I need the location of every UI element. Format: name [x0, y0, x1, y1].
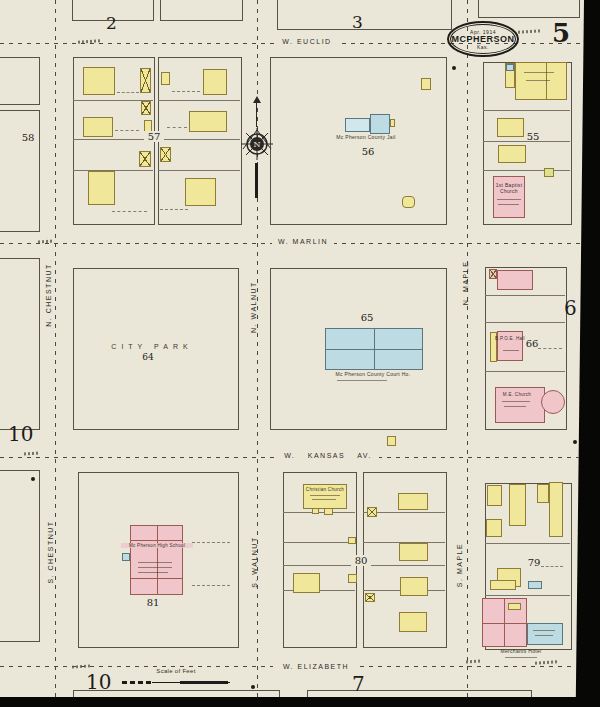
outbuilding — [489, 269, 497, 279]
adjacent-sheet-number-10-left: 10 — [8, 422, 33, 446]
illegible-caption — [337, 380, 387, 381]
partial-block-outline — [160, 0, 243, 21]
warehouse-stone-section — [506, 64, 514, 71]
illegible-caption — [505, 657, 537, 658]
lot-line — [363, 565, 445, 566]
block-number-64: 64 — [138, 352, 158, 362]
barn — [537, 484, 549, 503]
adjacent-sheet-number-3: 3 — [352, 12, 363, 32]
building-high-school — [130, 525, 183, 595]
court-house-interior-line — [374, 329, 375, 369]
outbuilding — [390, 119, 395, 127]
street-label-w-euclid: W. EUCLID — [276, 37, 338, 46]
outbuilding — [141, 101, 151, 115]
building-label-first-baptist-church: 1st Baptist Church — [487, 183, 531, 195]
dwelling — [497, 118, 524, 137]
stamp-inner-ring: Apr. 1914 McPherson Kas. — [450, 24, 516, 54]
partial-block-outline — [0, 470, 40, 642]
illegible-caption — [533, 630, 555, 631]
barn — [509, 484, 526, 526]
adjacent-sheet-number-6: 6 — [564, 296, 577, 320]
dwelling — [83, 67, 115, 95]
lot-line — [283, 565, 355, 566]
party-wall-line — [546, 63, 547, 99]
outbuilding — [140, 68, 151, 93]
lot-line — [158, 100, 240, 101]
school-interior-line — [131, 578, 182, 579]
street-label-n-chestnut: N. CHESTNUT — [45, 253, 57, 337]
lot-line — [485, 295, 565, 296]
outbuilding — [367, 507, 377, 517]
lot-dash — [167, 127, 187, 128]
shed — [486, 519, 502, 537]
block-number-81: 81 — [143, 597, 163, 608]
illegible-caption — [138, 567, 172, 568]
dwelling — [399, 543, 428, 561]
block-number-65: 65 — [355, 312, 379, 323]
stamp-city: McPherson — [451, 35, 514, 44]
implement-house — [515, 62, 567, 100]
barn — [549, 482, 563, 537]
lot-line — [158, 170, 240, 171]
barn — [487, 485, 502, 506]
illegible-caption — [497, 199, 521, 200]
hotel-stone-wing — [527, 623, 563, 645]
handwritten-note — [518, 29, 542, 34]
adjacent-sheet-number-2: 2 — [106, 13, 117, 33]
building-label-county-jail: Mc Pherson County Jail — [326, 135, 406, 141]
scale-caption: Scale of Feet — [136, 668, 216, 675]
dwelling — [88, 171, 115, 205]
lot-dash — [112, 211, 147, 212]
sheet-number: 5 — [552, 18, 570, 48]
lot-line — [485, 595, 570, 596]
outbuilding — [139, 151, 151, 167]
compass-arrow-tip — [253, 96, 261, 103]
lot-line — [485, 371, 565, 372]
street-label-w-marlin: W. MARLIN — [272, 237, 334, 246]
dwelling — [203, 69, 227, 95]
building-label-christian-church: Christian Church — [300, 487, 350, 492]
illegible-caption — [138, 572, 168, 573]
building-county-jail — [370, 114, 390, 134]
map-sheet: 2 3 Apr. 1914 McPherson Kas. 5 W. EUCLID… — [0, 0, 584, 697]
dwelling — [293, 573, 320, 593]
street-label-w-kansas: W. KANSAS AV. — [277, 451, 379, 460]
lot-dash — [160, 209, 188, 210]
building-county-court-house — [325, 328, 423, 370]
lot-line — [158, 139, 240, 140]
hotel-interior-line — [483, 623, 526, 624]
lot-dash — [115, 130, 139, 131]
lot-line — [483, 110, 570, 111]
outbuilding — [402, 196, 415, 208]
lot-dash — [172, 91, 200, 92]
street-label-n-maple: N. MAPLE — [462, 241, 474, 325]
block-number-57: 57 — [144, 131, 164, 142]
building-label-me-church: M.E. Church — [489, 392, 545, 397]
dwelling — [497, 270, 533, 290]
block-number-80: 80 — [351, 555, 371, 566]
outbuilding — [348, 537, 356, 544]
illegible-caption — [138, 562, 172, 563]
dwelling — [185, 178, 216, 206]
dwelling — [398, 493, 428, 510]
adjacent-sheet-number-7: 7 — [352, 672, 365, 696]
block-number-55: 55 — [522, 131, 544, 142]
lot-line — [73, 139, 153, 140]
lot-dash — [192, 542, 230, 543]
outbuilding — [421, 78, 431, 90]
school-stone-entry — [122, 553, 130, 561]
hydrant-dot — [573, 440, 577, 444]
street-label-s-maple: S. MAPLE — [456, 523, 468, 607]
lot-line — [485, 543, 570, 544]
illegible-caption — [526, 80, 550, 81]
lot-line — [483, 170, 570, 171]
partial-block-outline — [307, 690, 532, 697]
outbuilding — [544, 168, 554, 177]
scanned-map-page: { "stamp": { "date": "Apr. 1914", "city"… — [0, 0, 600, 707]
outbuilding — [387, 436, 396, 446]
compass-needle-line — [256, 101, 257, 127]
hydrant-dot — [31, 477, 35, 481]
dwelling — [399, 612, 427, 632]
church-porch — [324, 508, 333, 515]
compass-rose-icon: N — [239, 126, 275, 162]
scale-bar-segments — [122, 681, 152, 684]
stamp-state: Kas. — [477, 44, 489, 50]
handwritten-note — [24, 451, 40, 455]
outbuilding — [490, 580, 516, 590]
illegible-caption — [310, 495, 340, 496]
svg-text:N: N — [254, 140, 261, 149]
block-number-56: 56 — [356, 146, 380, 157]
block-number-66: 66 — [522, 338, 542, 349]
illegible-caption — [524, 72, 554, 73]
partial-block-outline — [277, 0, 452, 30]
building-label-merchants-hotel: Merchants Hotel — [481, 649, 561, 655]
outbuilding — [161, 72, 170, 85]
partial-block-outline — [0, 110, 40, 232]
lot-line — [283, 542, 355, 543]
street-label-s-chestnut: S. CHESTNUT — [47, 510, 59, 594]
hotel-annex — [508, 603, 521, 610]
dwelling — [83, 117, 113, 137]
hydrant-dot — [452, 66, 456, 70]
building-label-high-school: Mc Pherson High School — [121, 543, 193, 548]
publisher-date-stamp: Apr. 1914 McPherson Kas. — [447, 21, 519, 57]
dwelling — [400, 577, 428, 596]
outbuilding — [348, 574, 357, 583]
lot-dash — [192, 585, 230, 586]
building-county-jail-west-wing — [345, 118, 370, 132]
street-label-n-walnut: N. WALNUT — [250, 265, 262, 349]
street-label-w-elizabeth: W. ELIZABETH — [273, 662, 359, 671]
partial-block-outline — [0, 57, 40, 105]
outbuilding — [160, 147, 171, 162]
handwritten-note — [466, 660, 480, 664]
school-interior-line — [157, 526, 158, 594]
hydrant-dot — [251, 685, 255, 689]
outbuilding — [528, 581, 542, 589]
building-label-county-court-house: Mc Pherson County Court Ho. — [313, 372, 433, 378]
street-label-s-walnut: S. WALNUT — [251, 520, 263, 604]
handwritten-note — [72, 664, 90, 668]
compass-south-bar — [255, 163, 258, 198]
building-label-city-park: City Park — [102, 343, 202, 350]
illegible-caption — [504, 406, 526, 407]
illegible-caption — [535, 635, 553, 636]
handwritten-note — [535, 660, 557, 665]
adjacent-sheet-number-10-bottom: 10 — [86, 670, 111, 694]
church-porch — [312, 508, 319, 514]
dwelling — [189, 111, 227, 132]
block-number-79: 79 — [523, 557, 545, 568]
lot-dash — [117, 92, 139, 93]
dwelling — [498, 145, 526, 163]
block-number-58: 58 — [18, 132, 38, 143]
school-interior-line — [131, 540, 182, 541]
outbuilding — [365, 593, 375, 602]
illegible-caption — [502, 401, 530, 402]
scale-bar-segments — [180, 681, 228, 684]
lot-line — [485, 322, 565, 323]
illegible-caption — [503, 350, 519, 351]
partial-block-outline — [478, 0, 580, 18]
illegible-caption — [498, 204, 519, 205]
partial-block-outline — [0, 258, 40, 430]
lot-line — [283, 512, 355, 513]
scale-bar — [122, 679, 230, 685]
illegible-caption — [312, 499, 336, 500]
